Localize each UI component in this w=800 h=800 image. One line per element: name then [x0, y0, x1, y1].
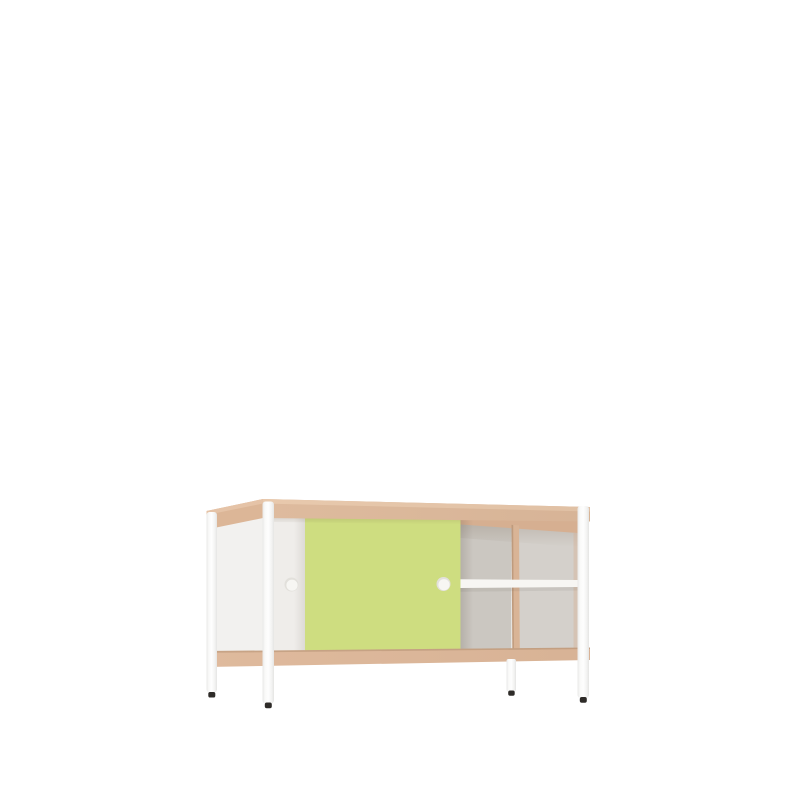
leg-rear-right [507, 659, 517, 692]
background [0, 0, 800, 800]
green-door-handle [438, 579, 449, 590]
compartment-rear-corner [574, 533, 578, 649]
leg-rear-left [207, 512, 218, 693]
compartment-shelf [461, 579, 578, 588]
sideboard-render [0, 0, 800, 800]
white-door-handle [286, 580, 297, 591]
side-panel [217, 516, 263, 654]
leg-foot-rear-right [508, 691, 515, 696]
leg-front-left [263, 502, 275, 704]
leg-front-right [578, 506, 590, 698]
product-image-stage [0, 0, 800, 800]
leg-foot-rear-left [208, 692, 215, 698]
leg-foot-front-left [265, 703, 272, 709]
leg-foot-front-right [580, 697, 587, 703]
